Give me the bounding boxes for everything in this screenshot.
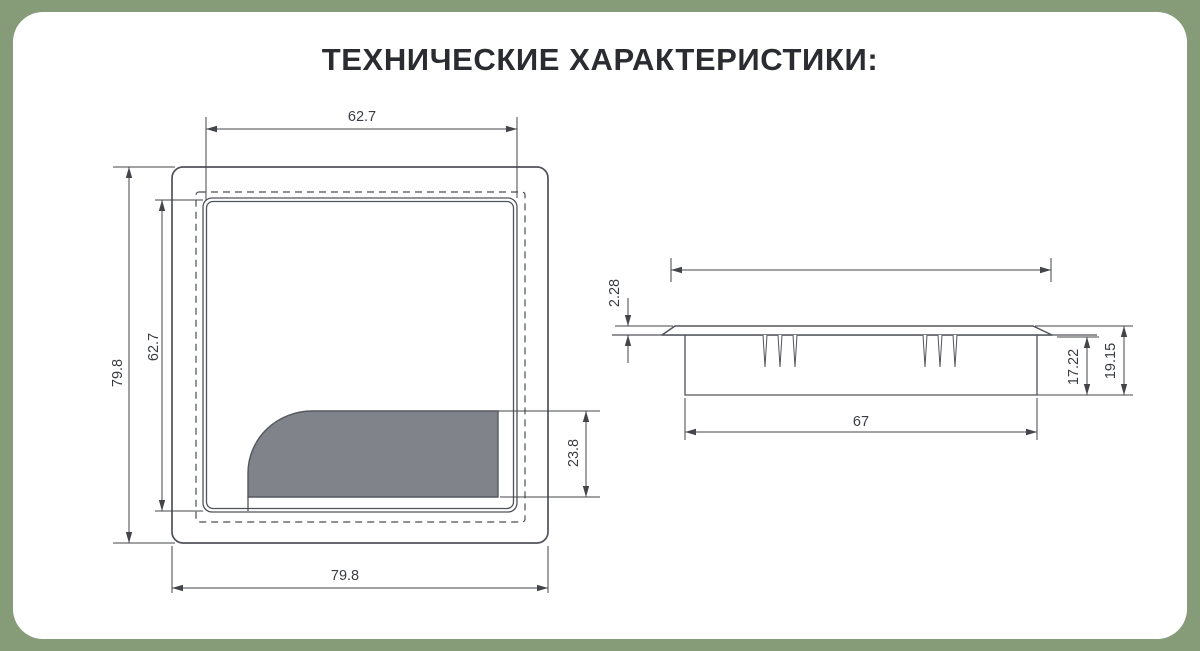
top-view-drawing: 62.7 79.8 62.7 23.8 79.8 [100,100,610,600]
dim-inner-width: 62.7 [206,109,517,200]
lid-shape [248,411,498,497]
dim-flange-thickness-label: 2.28 [607,279,623,307]
dim-inner-height: 62.7 [146,200,203,511]
dim-outer-height-label: 79.8 [110,359,126,387]
page-title: ТЕХНИЧЕСКИЕ ХАРАКТЕРИСТИКИ: [13,42,1187,78]
dim-lid-depth-label: 23.8 [566,439,582,467]
dim-cutout-width-label: 67 [853,414,869,430]
side-view-drawing: 2.28 17.22 19.15 67 [600,240,1160,450]
dim-total-height: 19.15 [1035,326,1133,395]
dim-total-height-label: 19.15 [1103,343,1119,379]
dim-cutout-width: 67 [685,398,1037,440]
retaining-spikes [763,335,957,367]
dim-outer-height: 79.8 [110,167,175,543]
dim-overall-width-unlabeled [671,258,1051,282]
dim-outer-width: 79.8 [172,546,548,593]
dim-insert-depth-label: 17.22 [1066,349,1082,385]
body-outline [685,335,1037,395]
dim-inner-height-label: 62.7 [146,333,162,361]
flange-shape [662,326,1052,335]
dim-inner-width-label: 62.7 [348,109,376,125]
dim-outer-width-label: 79.8 [331,568,359,584]
dim-flange-thickness: 2.28 [607,279,673,363]
